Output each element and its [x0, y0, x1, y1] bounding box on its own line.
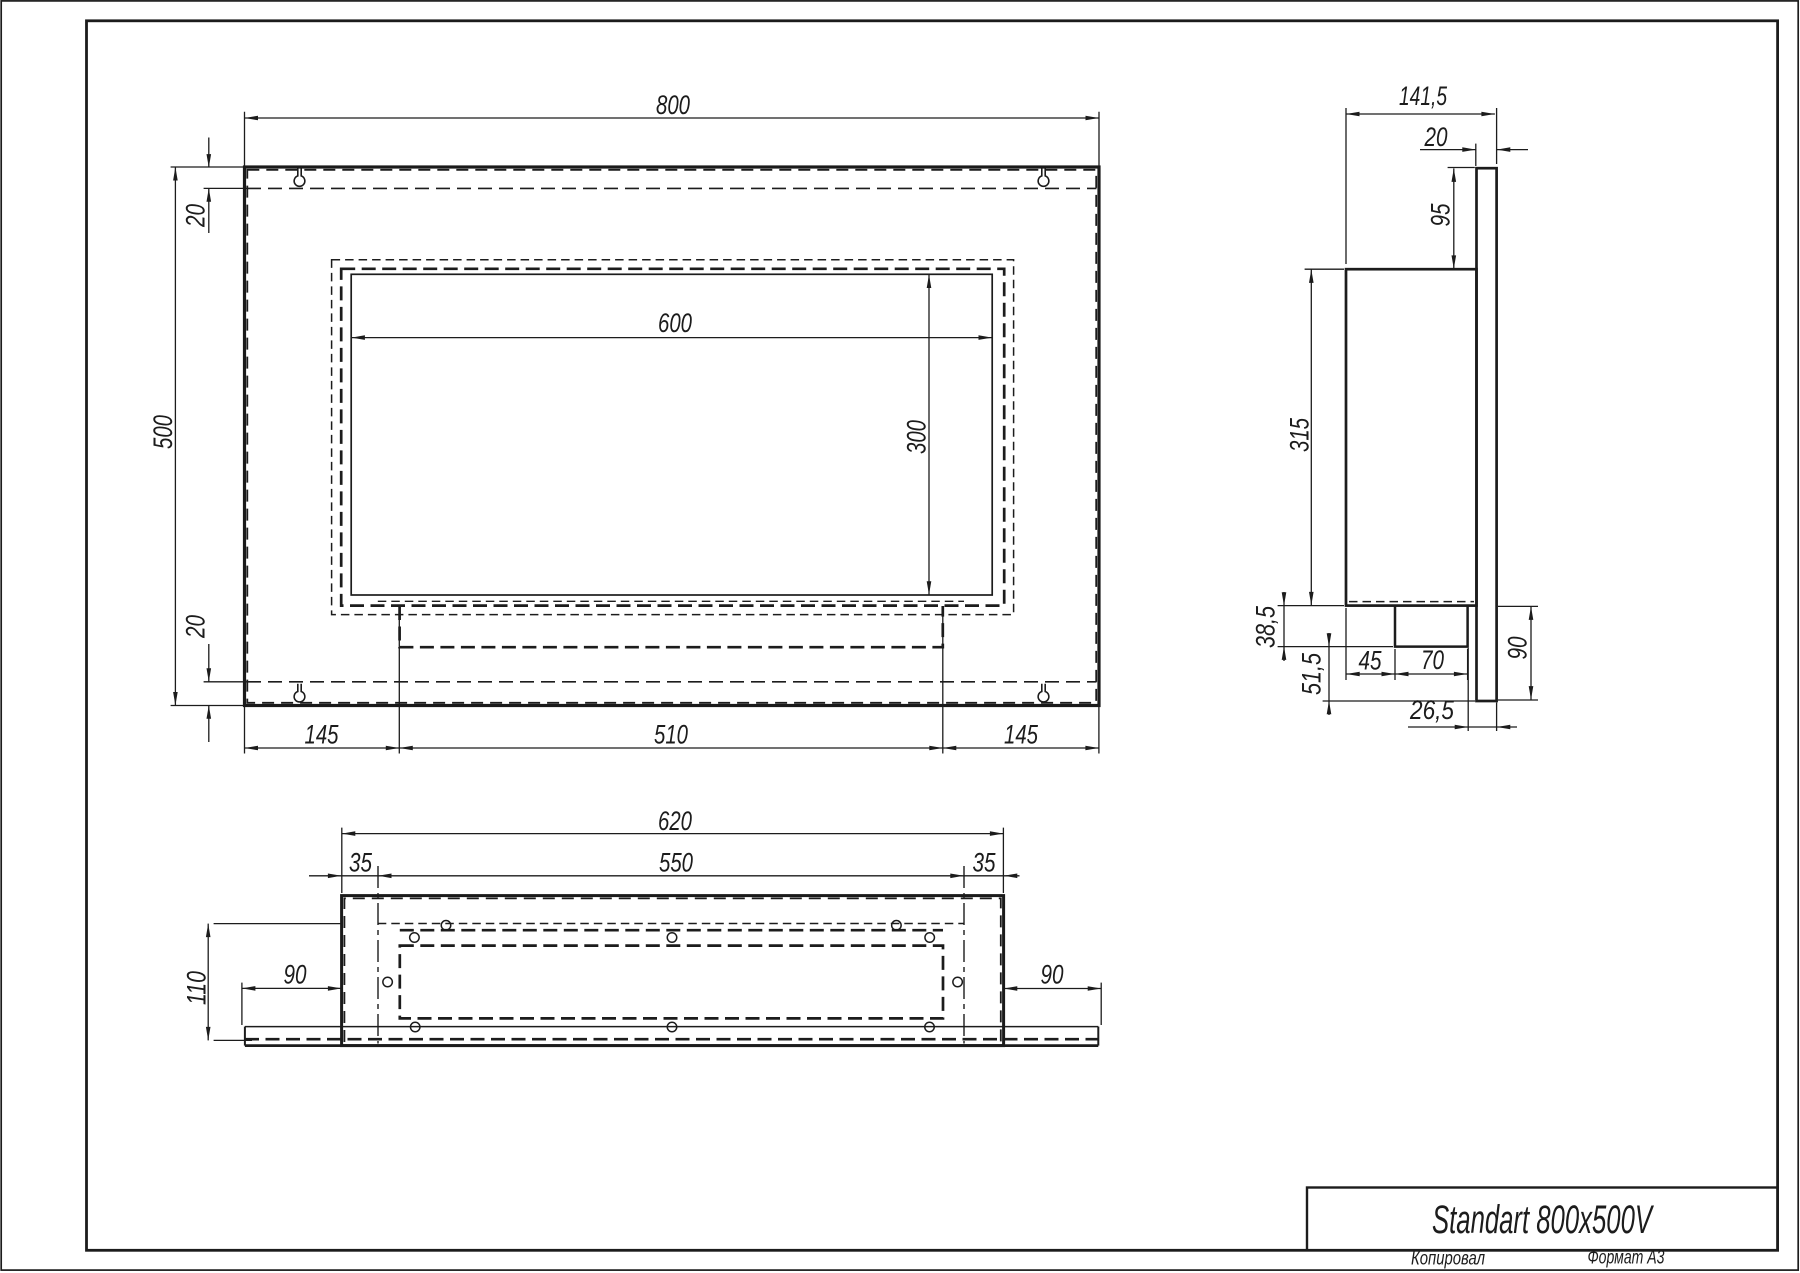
svg-text:Standart 800x500V: Standart 800x500V [1432, 1198, 1654, 1242]
svg-text:38,5: 38,5 [1251, 605, 1281, 648]
svg-text:110: 110 [182, 971, 212, 1005]
svg-text:20: 20 [181, 204, 211, 228]
svg-text:70: 70 [1421, 645, 1444, 675]
svg-text:20: 20 [1424, 122, 1448, 152]
svg-text:500: 500 [148, 415, 178, 449]
svg-text:600: 600 [658, 308, 692, 338]
svg-text:800: 800 [656, 90, 690, 120]
svg-text:145: 145 [305, 720, 340, 750]
svg-text:Формат А3: Формат А3 [1588, 1248, 1665, 1269]
svg-text:45: 45 [1359, 646, 1383, 676]
svg-text:35: 35 [973, 848, 997, 878]
svg-text:26,5: 26,5 [1409, 695, 1455, 725]
svg-text:51,5: 51,5 [1297, 652, 1327, 695]
svg-text:550: 550 [659, 848, 693, 878]
svg-text:145: 145 [1004, 720, 1039, 750]
svg-text:20: 20 [181, 615, 211, 639]
svg-text:35: 35 [349, 848, 373, 878]
svg-text:510: 510 [654, 720, 688, 750]
svg-text:90: 90 [284, 960, 307, 990]
svg-text:Копировал: Копировал [1411, 1249, 1485, 1270]
svg-text:90: 90 [1041, 960, 1064, 990]
svg-text:620: 620 [658, 806, 692, 836]
svg-text:300: 300 [902, 420, 932, 454]
svg-text:315: 315 [1285, 417, 1315, 452]
svg-text:141,5: 141,5 [1399, 81, 1448, 111]
svg-text:90: 90 [1503, 637, 1533, 660]
svg-text:95: 95 [1426, 203, 1456, 227]
